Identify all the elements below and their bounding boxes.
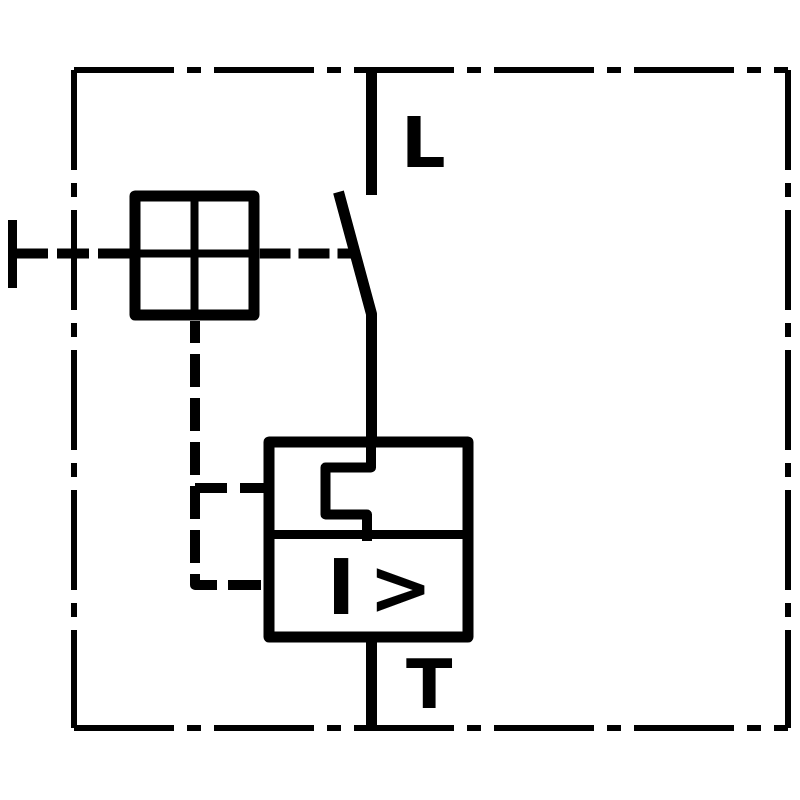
load-terminal-label: T: [406, 645, 453, 724]
trip-linkage-main: [195, 321, 272, 585]
release-box: I >: [264, 442, 473, 637]
actuator-cross-square: [135, 196, 254, 315]
circuit-breaker-diagram: I > L T: [0, 0, 800, 800]
schematic-canvas: I > L T: [0, 0, 800, 800]
switch-contact-blade: [339, 192, 372, 442]
overcurrent-release-label: I >: [327, 543, 426, 632]
line-terminal-label: L: [401, 102, 446, 184]
